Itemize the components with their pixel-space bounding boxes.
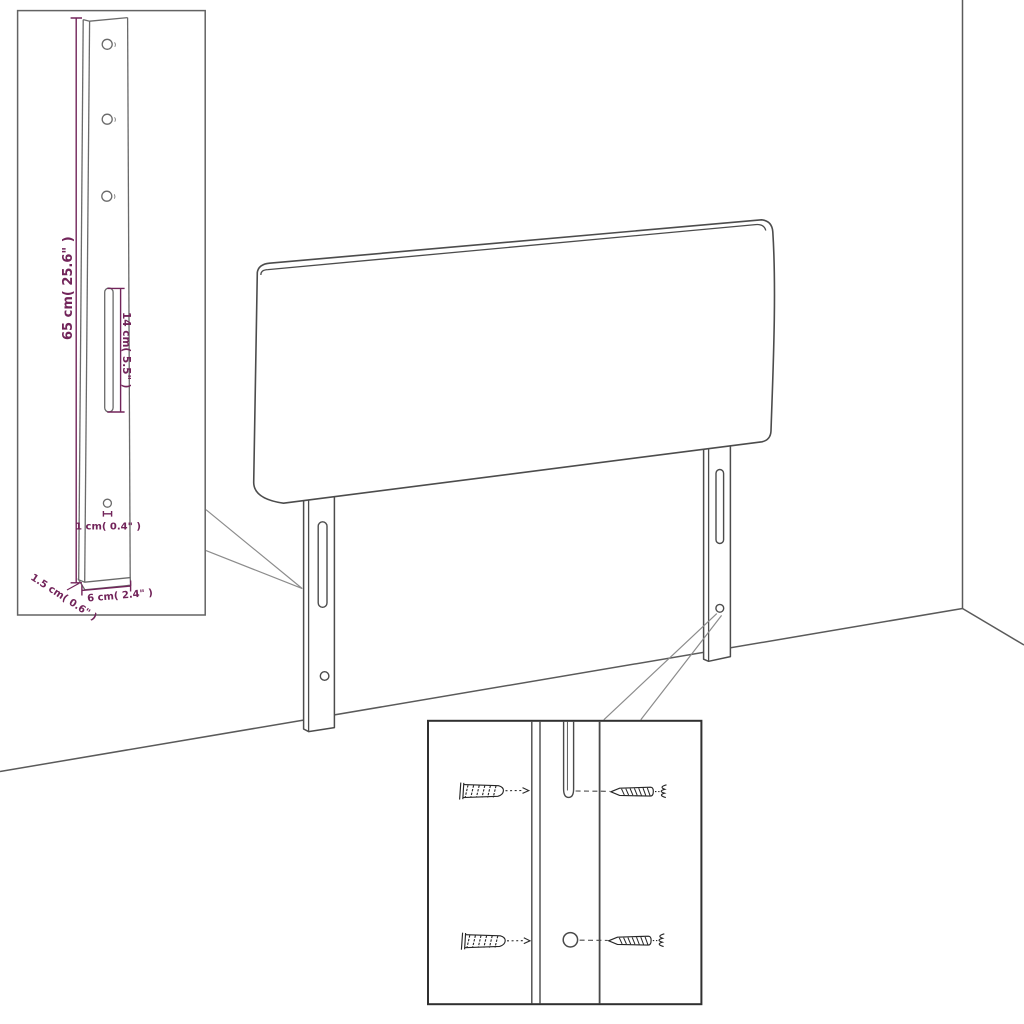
floor-line-right	[963, 609, 1024, 646]
hardware-inset-border	[428, 721, 701, 1004]
leg-hole-lower	[102, 191, 112, 201]
left-leg-hole	[320, 672, 329, 681]
right-leg-hole	[716, 604, 724, 612]
headboard-panel	[254, 220, 775, 503]
dim-slot-label: 14 cm( 5.5" )	[120, 312, 132, 388]
dim-hole-label: 1 cm( 0.4" )	[75, 522, 141, 533]
callout-lines-left-inset	[206, 510, 302, 589]
panel-outline	[254, 220, 775, 503]
diagram-svg: 65 cm( 25.6" ) 14 cm( 5.5" ) 1 cm( 0.4" …	[0, 0, 1024, 1024]
leg-small-hole	[103, 499, 111, 507]
dim-height-label: 65 cm( 25.6" )	[61, 236, 76, 340]
leg-hole-middle	[102, 114, 112, 124]
headboard-left-leg	[304, 485, 335, 732]
leg-detail-inset: 65 cm( 25.6" ) 14 cm( 5.5" ) 1 cm( 0.4" …	[18, 11, 206, 624]
leg-hole-top	[102, 39, 112, 49]
headboard-right-leg	[704, 440, 731, 661]
hardware-detail-inset	[428, 721, 701, 1004]
product-diagram: 65 cm( 25.6" ) 14 cm( 5.5" ) 1 cm( 0.4" …	[0, 0, 1024, 1024]
